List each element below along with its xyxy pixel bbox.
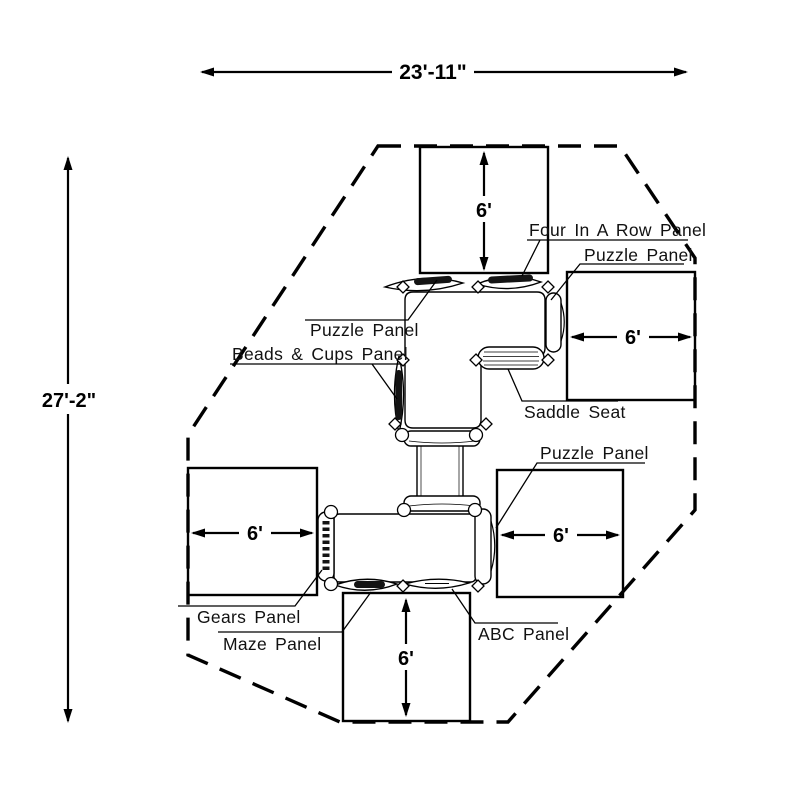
overall-height-value: 27'-2" — [42, 390, 96, 412]
saddle-seat — [478, 347, 544, 369]
panel-puzzle-right-upper — [546, 293, 564, 352]
bridge — [404, 431, 480, 511]
label-puzzle-top-right: Puzzle Panel — [584, 245, 693, 265]
post-round — [325, 506, 338, 519]
label-maze: Maze Panel — [223, 634, 321, 654]
label-puzzle-bottom-right: Puzzle Panel — [540, 443, 649, 463]
label-four-in-a-row: Four In A Row Panel — [529, 220, 706, 240]
dim-clearance-right: 6' — [570, 323, 692, 350]
dim-clearance-bottom: 6' — [391, 598, 421, 717]
leader-puzzle-top-right — [551, 264, 684, 300]
arrowhead-down — [64, 709, 73, 723]
label-abc: ABC Panel — [478, 624, 569, 644]
overall-width-value: 23'-11" — [399, 61, 467, 84]
panel-four-in-a-row — [477, 274, 541, 288]
dim-clearance-bottom-right: 6' — [500, 521, 620, 548]
clearance-left-value: 6' — [247, 523, 263, 545]
panel-puzzle-right-lower — [475, 509, 495, 584]
label-saddle-seat: Saddle Seat — [524, 402, 626, 422]
leader-gears — [178, 570, 322, 606]
post-diamond — [542, 281, 554, 293]
arrowhead-left — [200, 68, 214, 77]
plan-view-drawing: 23'-11" 27'-2" 6' 6' 6' 6' — [0, 0, 800, 800]
clearance-bottom-right-value: 6' — [553, 525, 569, 547]
post-round — [470, 429, 483, 442]
panel-puzzle-top-left — [385, 276, 463, 291]
label-gears: Gears Panel — [197, 607, 301, 627]
label-beads-cups: Beads & Cups Panel — [232, 344, 408, 364]
dim-overall-width: 23'-11" — [200, 56, 688, 86]
clearance-right-value: 6' — [625, 327, 641, 349]
panel-gears — [318, 512, 334, 581]
leader-saddle-seat — [508, 369, 618, 401]
dim-clearance-left: 6' — [191, 519, 314, 546]
clearance-top-value: 6' — [476, 200, 492, 222]
post-round — [396, 429, 409, 442]
post-diamond — [480, 418, 492, 430]
dim-clearance-top: 6' — [469, 151, 499, 271]
dim-overall-height: 27'-2" — [38, 156, 100, 723]
lower-deck — [334, 514, 476, 582]
bridge-top-cap — [404, 431, 480, 446]
arrowhead-up — [64, 156, 73, 170]
label-puzzle-top-left: Puzzle Panel — [310, 320, 419, 340]
clearance-bottom-value: 6' — [398, 648, 414, 670]
arrowhead-right — [674, 68, 688, 77]
blueprint-canvas: 23'-11" 27'-2" 6' 6' 6' 6' — [0, 0, 800, 800]
post-round — [469, 504, 482, 517]
leader-beads-cups — [230, 364, 400, 399]
post-round — [325, 578, 338, 591]
post-round — [398, 504, 411, 517]
